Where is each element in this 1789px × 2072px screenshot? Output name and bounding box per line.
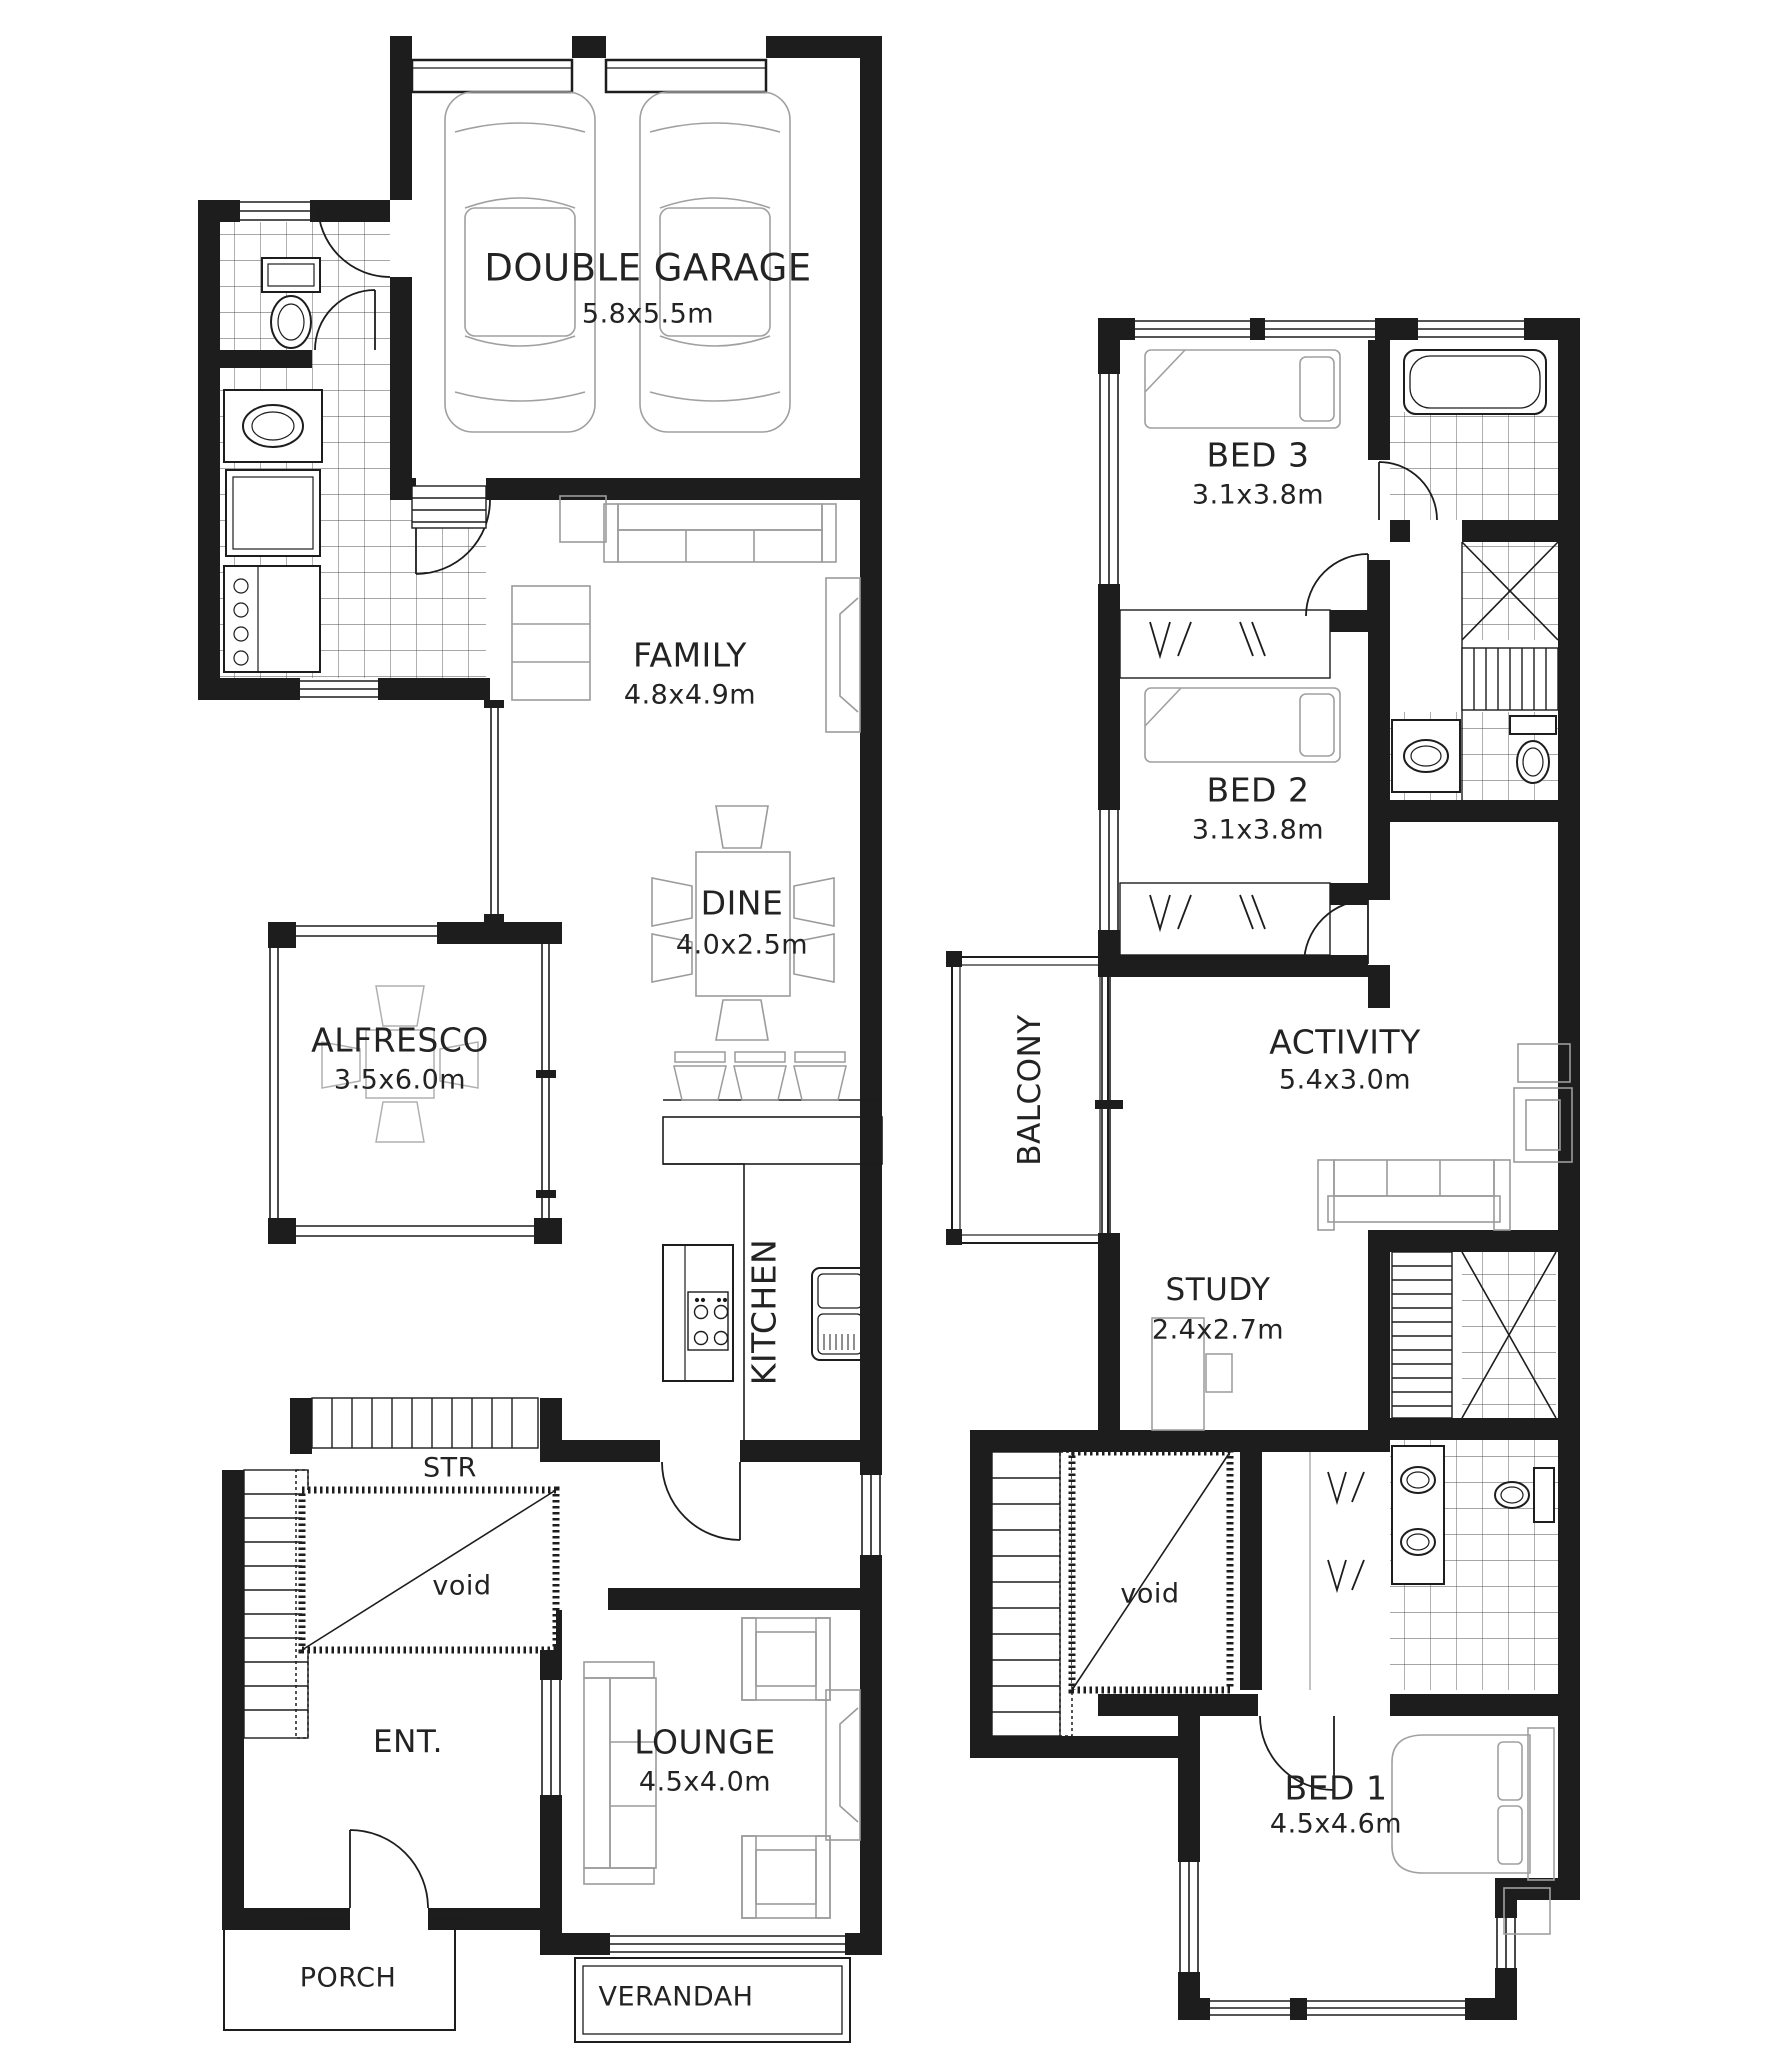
floor-plan-drawing [0,0,1789,2072]
upper-stairs-mid [1392,1252,1452,1418]
room-label-garage: DOUBLE GARAGE [484,247,811,290]
room-label-dine: DINE [701,884,784,923]
laundry-appliance-icon [224,566,320,672]
room-dims-bed1: 4.5x4.6m [1270,1809,1402,1840]
room-dims-family: 4.8x4.9m [624,680,756,711]
garage-door-panels [412,60,766,92]
upper-annex-stairs [992,1452,1060,1736]
laundry-trough-icon [224,390,322,462]
room-label-void-upper: void [1120,1579,1179,1610]
room-label-kitchen: KITCHEN [745,1239,784,1386]
kitchen-island-stove [663,1245,733,1381]
room-dims-dine: 4.0x2.5m [676,930,808,961]
room-label-entry: ENT. [373,1724,443,1760]
laundry-steps [412,486,486,528]
room-label-activity: ACTIVITY [1269,1023,1421,1062]
room-label-stairs: STR [423,1453,477,1484]
room-dims-garage: 5.8x5.5m [582,299,714,330]
tv-icon [826,1690,860,1840]
ground-void [302,1490,556,1650]
room-dims-bed3: 3.1x3.8m [1192,480,1324,511]
room-label-bed2: BED 2 [1207,771,1310,810]
wir-robe-glyphs [1310,1452,1364,1690]
upper-void [1072,1452,1230,1690]
room-label-verandah: VERANDAH [599,1982,754,2013]
room-dims-lounge: 4.5x4.0m [639,1767,771,1798]
dining-table-set [652,806,834,1040]
room-label-bed1: BED 1 [1285,1769,1388,1808]
window-ticks [484,700,556,1198]
bathtub-icon [1404,350,1546,414]
room-label-balcony: BALCONY [1012,1014,1048,1165]
floor-plan-canvas: DOUBLE GARAGE 5.8x5.5m FAMILY 4.8x4.9m D… [0,0,1789,2072]
bar-stools [674,1052,846,1100]
vanity-double-basin [1392,1446,1444,1584]
washing-machine-icon [226,470,320,556]
bed2-robe [1120,883,1330,955]
upper-stairs-top [1462,648,1558,710]
room-label-family: FAMILY [633,636,747,675]
room-dims-alfresco: 3.5x6.0m [334,1065,466,1096]
upper-windows [1100,321,1524,2015]
room-label-lounge: LOUNGE [634,1723,775,1762]
activity-sofa [1318,1160,1510,1230]
room-label-porch: PORCH [300,1963,397,1994]
fridge-icon [812,1268,868,1360]
bed3-robe [1120,610,1330,678]
bed1-bed-icon [1392,1728,1554,1934]
room-dims-bed2: 3.1x3.8m [1192,815,1324,846]
ground-floor-drawing [198,36,882,2042]
vanity-basin-top [1392,720,1460,792]
room-label-alfresco: ALFRESCO [311,1021,489,1060]
room-dims-activity: 5.4x3.0m [1279,1065,1411,1096]
room-dims-study: 2.4x2.7m [1152,1315,1284,1346]
room-label-study: STUDY [1166,1272,1271,1308]
bed2-bed-icon [1145,688,1340,762]
upper-floor-drawing [946,318,1580,2020]
room-label-void-ground: void [432,1571,491,1602]
room-label-bed3: BED 3 [1207,436,1310,475]
bed3-bed-icon [1145,350,1340,428]
tv-icon [826,578,860,732]
